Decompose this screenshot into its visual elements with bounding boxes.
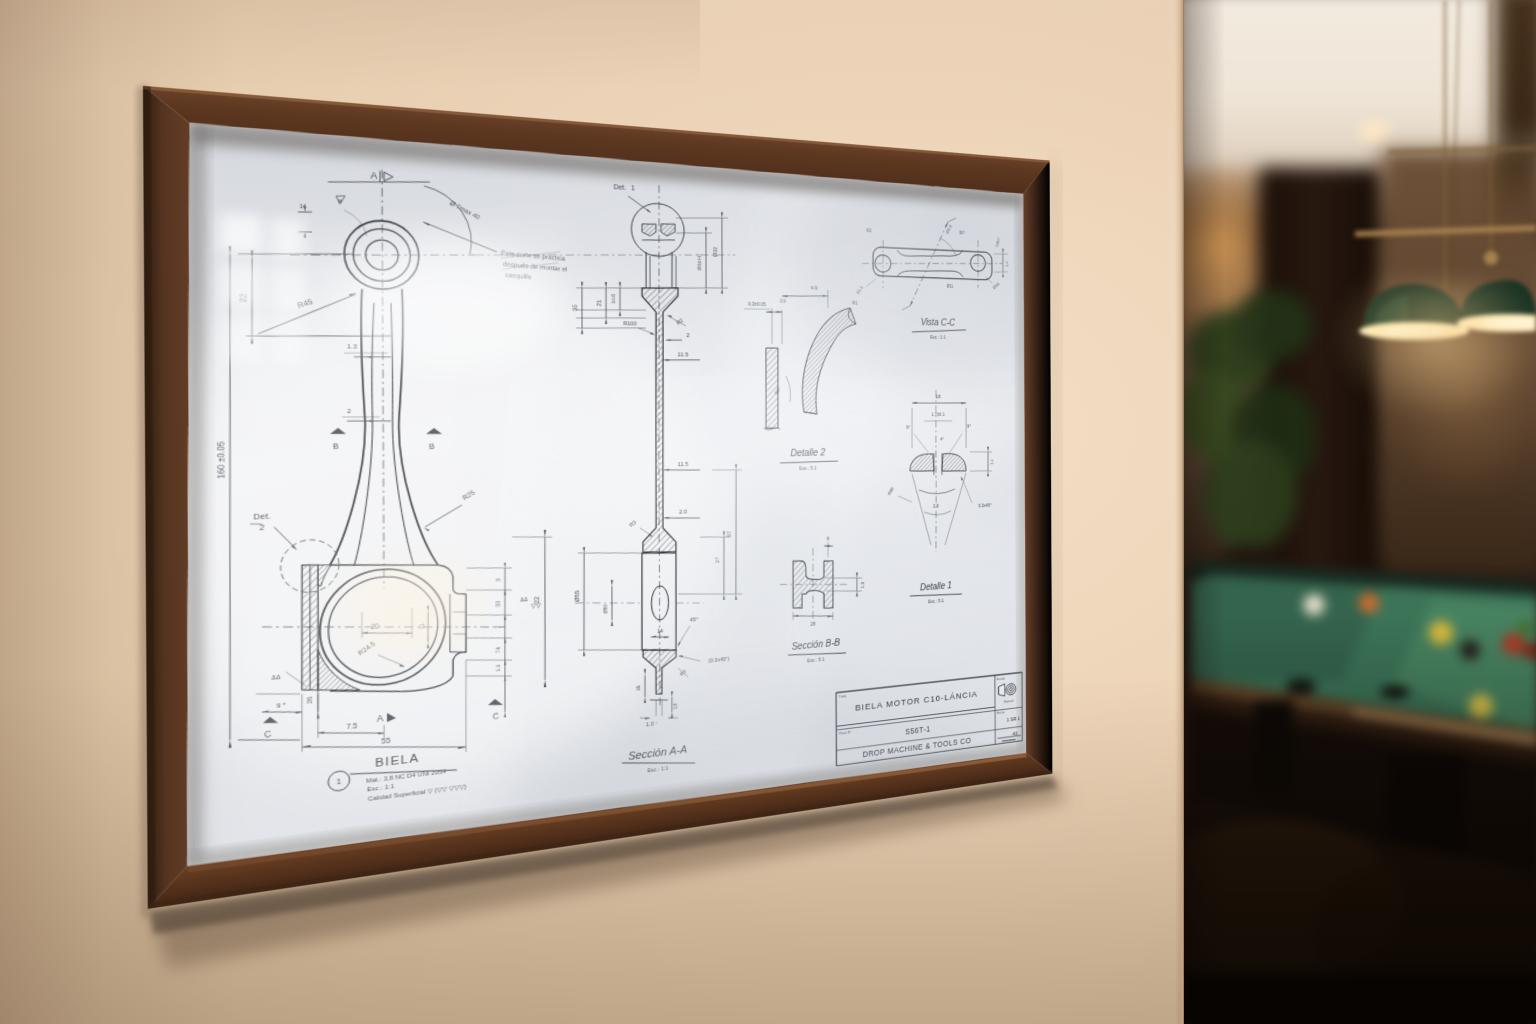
svg-text:14.0: 14.0 xyxy=(611,294,617,304)
svg-text:35: 35 xyxy=(636,685,641,691)
svg-text:1.4: 1.4 xyxy=(991,459,995,465)
svg-text:2.9: 2.9 xyxy=(933,504,939,509)
svg-text:Ø34 H7: Ø34 H7 xyxy=(697,253,702,270)
svg-text:14: 14 xyxy=(657,629,663,635)
svg-text:1.9: 1.9 xyxy=(861,581,866,588)
svg-text:21: 21 xyxy=(595,300,602,307)
svg-text:11.5: 11.5 xyxy=(678,351,689,358)
svg-text:Ø32: Ø32 xyxy=(713,247,718,257)
svg-text:R100: R100 xyxy=(623,321,636,327)
svg-text:▽▽: ▽▽ xyxy=(531,602,542,610)
svg-text:A: A xyxy=(371,171,378,181)
svg-text:9°: 9° xyxy=(967,424,971,430)
svg-text:Ø55: Ø55 xyxy=(573,590,580,602)
svg-text:1: 1 xyxy=(631,184,635,192)
svg-text:4°: 4° xyxy=(940,438,943,442)
svg-text:14: 14 xyxy=(300,204,307,210)
svg-text:0.3x45°: 0.3x45° xyxy=(978,503,992,509)
svg-text:35: 35 xyxy=(571,304,578,311)
svg-text:2: 2 xyxy=(686,332,689,339)
svg-text:Det.: Det. xyxy=(613,183,626,192)
svg-text:Ø50: Ø50 xyxy=(603,604,609,614)
